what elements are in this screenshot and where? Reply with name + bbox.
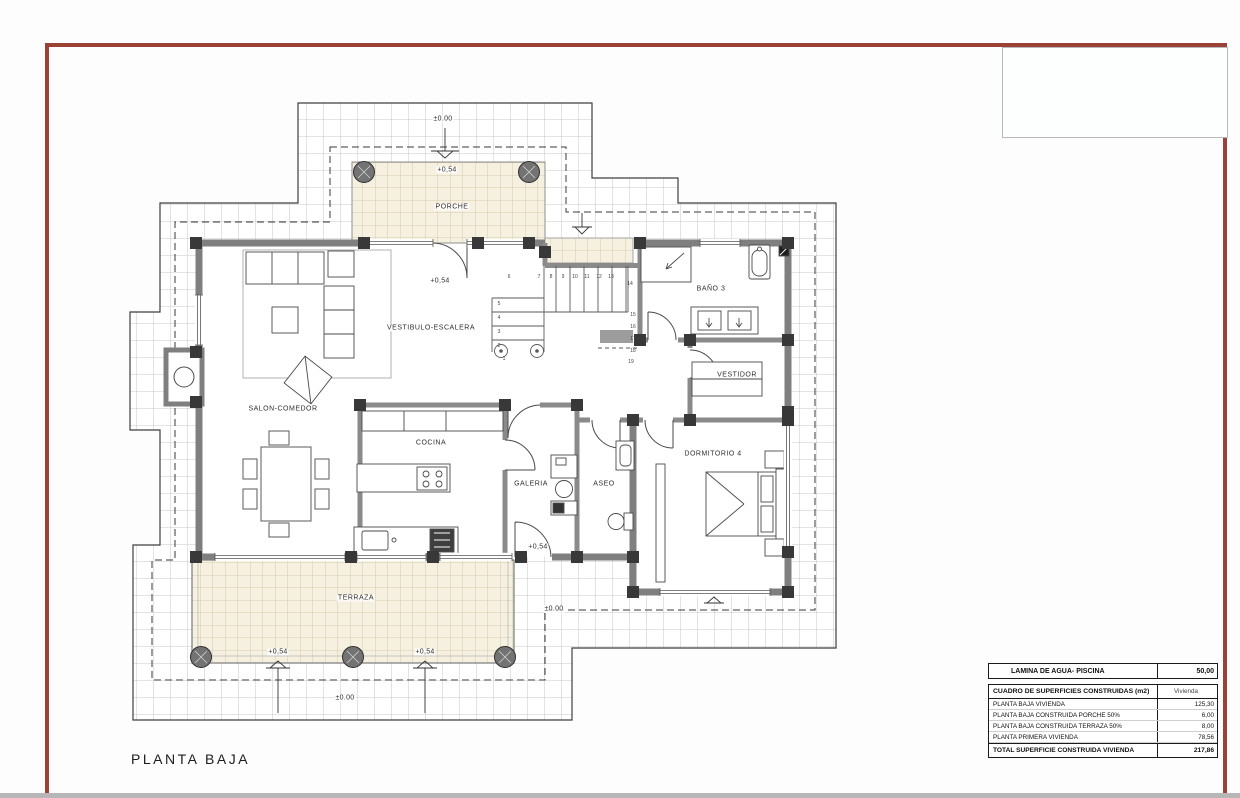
porch-floor [352, 162, 545, 243]
level-label: +0,54 [414, 649, 435, 656]
kitchen-counter [362, 411, 503, 431]
sheet-title: PLANTA BAJA [131, 751, 250, 767]
wall-niche [166, 350, 202, 404]
areas-header-label: CUADRO DE SUPERFICIES CONSTRUIDAS (m2) [989, 688, 1157, 695]
coffee-table [272, 307, 298, 333]
svg-text:4: 4 [498, 315, 501, 321]
areas-header-row: CUADRO DE SUPERFICIES CONSTRUIDAS (m2) V… [989, 685, 1217, 699]
areas-table: LAMINA DE AGUA- PISCINA 50,00 CUADRO DE … [988, 663, 1218, 758]
room-label-galeria: GALERIA [513, 481, 549, 488]
pillow [761, 476, 773, 502]
svg-text:7: 7 [538, 274, 541, 280]
headboard [776, 469, 785, 539]
level-label: +0,54 [527, 544, 548, 551]
areas-header-value: Vivienda [1157, 685, 1217, 698]
total-label: TOTAL SUPERFICIE CONSTRUIDA VIVIENDA [989, 747, 1157, 754]
level-label: +0,54 [436, 167, 457, 174]
room-label-vestibulo: VESTIBULO-ESCALERA [386, 325, 476, 332]
svg-text:5: 5 [498, 301, 501, 307]
kitchen-sink [362, 531, 388, 550]
room-label-aseo: ASEO [592, 481, 615, 488]
toilet-tank [624, 513, 633, 530]
svg-text:18: 18 [630, 348, 636, 354]
nightstand [765, 539, 784, 556]
armchair [328, 251, 354, 277]
svg-text:6: 6 [508, 274, 511, 280]
water-surface-value: 50,00 [1157, 664, 1217, 678]
level-label: ±0.00 [544, 606, 565, 613]
svg-text:9: 9 [562, 274, 565, 280]
cooktop [417, 467, 447, 490]
svg-text:14: 14 [627, 281, 633, 287]
table-row: PLANTA BAJA CONSTRUIDA TERRAZA 50% 8,00 [989, 721, 1217, 732]
table-row: PLANTA BAJA CONSTRUIDA PORCHE 50% 6,00 [989, 710, 1217, 721]
svg-text:17: 17 [630, 336, 636, 342]
level-label: +0,54 [267, 649, 288, 656]
room-label-salon: SALON-COMEDOR [247, 406, 318, 413]
svg-text:2: 2 [498, 343, 501, 349]
table-row: PLANTA BAJA VIVIENDA 125,30 [989, 699, 1217, 710]
dining-table [261, 447, 311, 521]
room-label-porche: PORCHE [435, 204, 470, 211]
svg-text:15: 15 [630, 312, 636, 318]
table-row: PLANTA PRIMERA VIVIENDA 78,56 [989, 732, 1217, 743]
entry-walkway-floor [545, 238, 633, 263]
pillow [761, 506, 773, 532]
svg-text:19: 19 [628, 359, 634, 365]
svg-text:16: 16 [630, 324, 636, 330]
nightstand [765, 451, 784, 468]
level-label: ±0.00 [433, 116, 454, 123]
scan-edge [0, 793, 1240, 798]
svg-text:13: 13 [608, 274, 614, 280]
svg-text:12: 12 [596, 274, 602, 280]
toilet-bowl [608, 514, 624, 530]
svg-text:3: 3 [498, 329, 501, 335]
total-value: 217,86 [1157, 744, 1217, 757]
built-areas-box: CUADRO DE SUPERFICIES CONSTRUIDAS (m2) V… [988, 684, 1218, 758]
room-label-cocina: COCINA [415, 440, 447, 447]
water-surface-row: LAMINA DE AGUA- PISCINA 50,00 [988, 663, 1218, 679]
plan-sheet: 12345678910111213141516171819 PORCHE VES… [0, 0, 1240, 798]
room-label-dormitorio4: DORMITORIO 4 [683, 451, 742, 458]
shower [641, 247, 691, 282]
level-label: ±0.00 [335, 695, 356, 702]
room-label-bano3: BAÑO 3 [696, 286, 727, 293]
closet [656, 464, 665, 582]
water-surface-label: LAMINA DE AGUA- PISCINA [989, 668, 1157, 675]
room-label-terraza: TERRAZA [337, 595, 375, 602]
chaise [324, 286, 354, 358]
boiler [556, 481, 573, 498]
room-label-vestidor: VESTIDOR [716, 372, 758, 379]
sofa [246, 252, 324, 284]
total-row: TOTAL SUPERFICIE CONSTRUIDA VIVIENDA 217… [989, 743, 1217, 757]
svg-text:8: 8 [550, 274, 553, 280]
level-label: +0,54 [429, 278, 450, 285]
svg-text:1: 1 [503, 356, 506, 362]
svg-text:10: 10 [572, 274, 578, 280]
svg-text:11: 11 [584, 274, 589, 280]
